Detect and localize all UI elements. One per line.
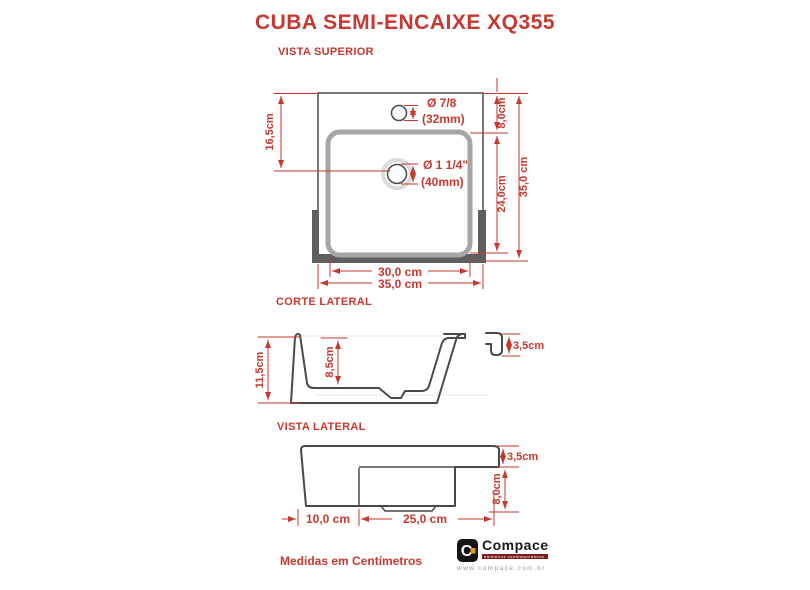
- top-view: Ø 7/8 (32mm) Ø 1 1/4" (40mm) 16,5cm 8,0c…: [264, 78, 530, 291]
- brand-tagline: banheiros contemporâneos: [482, 554, 548, 559]
- dim-label-8-5: 8,5cm: [324, 346, 336, 377]
- faucet-diameter-label: Ø 7/8: [427, 96, 457, 110]
- faucet-hole: [392, 106, 407, 121]
- dim-label-25-0: 25,0 cm: [403, 512, 447, 526]
- dim-label-11-5: 11,5cm: [254, 351, 266, 388]
- section-front-hook: [486, 333, 502, 355]
- dim-label-3-5-section: 3,5cm: [513, 340, 544, 352]
- dim-label-3-5-side: 3,5cm: [507, 451, 538, 463]
- section-inner-profile: [291, 334, 465, 403]
- brand-name: Compace: [482, 539, 549, 552]
- brand-website: www.compace.com.br: [457, 565, 565, 572]
- dim-label-8-0: 8,0cm: [496, 97, 508, 128]
- basin-outline: [328, 132, 470, 255]
- drain-diameter-label: Ø 1 1/4": [423, 158, 468, 172]
- dim-label-10-0: 10,0 cm: [306, 512, 350, 526]
- dim-label-8-0-side: 8,0cm: [491, 473, 503, 504]
- dim-label-35-0-bottom: 35,0 cm: [378, 277, 422, 291]
- dim-label-24-0: 24,0cm: [496, 175, 508, 213]
- drain-mm-label: (40mm): [421, 175, 464, 189]
- side-outline: [301, 446, 499, 506]
- drain-hole: [388, 165, 407, 184]
- technical-drawing: Ø 7/8 (32mm) Ø 1 1/4" (40mm) 16,5cm 8,0c…: [0, 0, 810, 590]
- section-outer-profile: [291, 334, 465, 403]
- compace-logo: C Compace banheiros contemporâneos www.c…: [457, 539, 565, 572]
- dim-label-35-0-right: 35,0 cm: [518, 157, 530, 198]
- faucet-mm-label: (32mm): [422, 112, 465, 126]
- compace-c-icon: C: [457, 539, 478, 562]
- dim-label-16-5: 16,5cm: [264, 113, 276, 151]
- section-view: 11,5cm 8,5cm 3,5cm: [254, 333, 544, 403]
- spec-sheet: CUBA SEMI-ENCAIXE XQ355 VISTA SUPERIOR C…: [0, 0, 810, 590]
- side-view: 3,5cm 8,0cm 10,0 cm 25,0 cm: [282, 446, 538, 526]
